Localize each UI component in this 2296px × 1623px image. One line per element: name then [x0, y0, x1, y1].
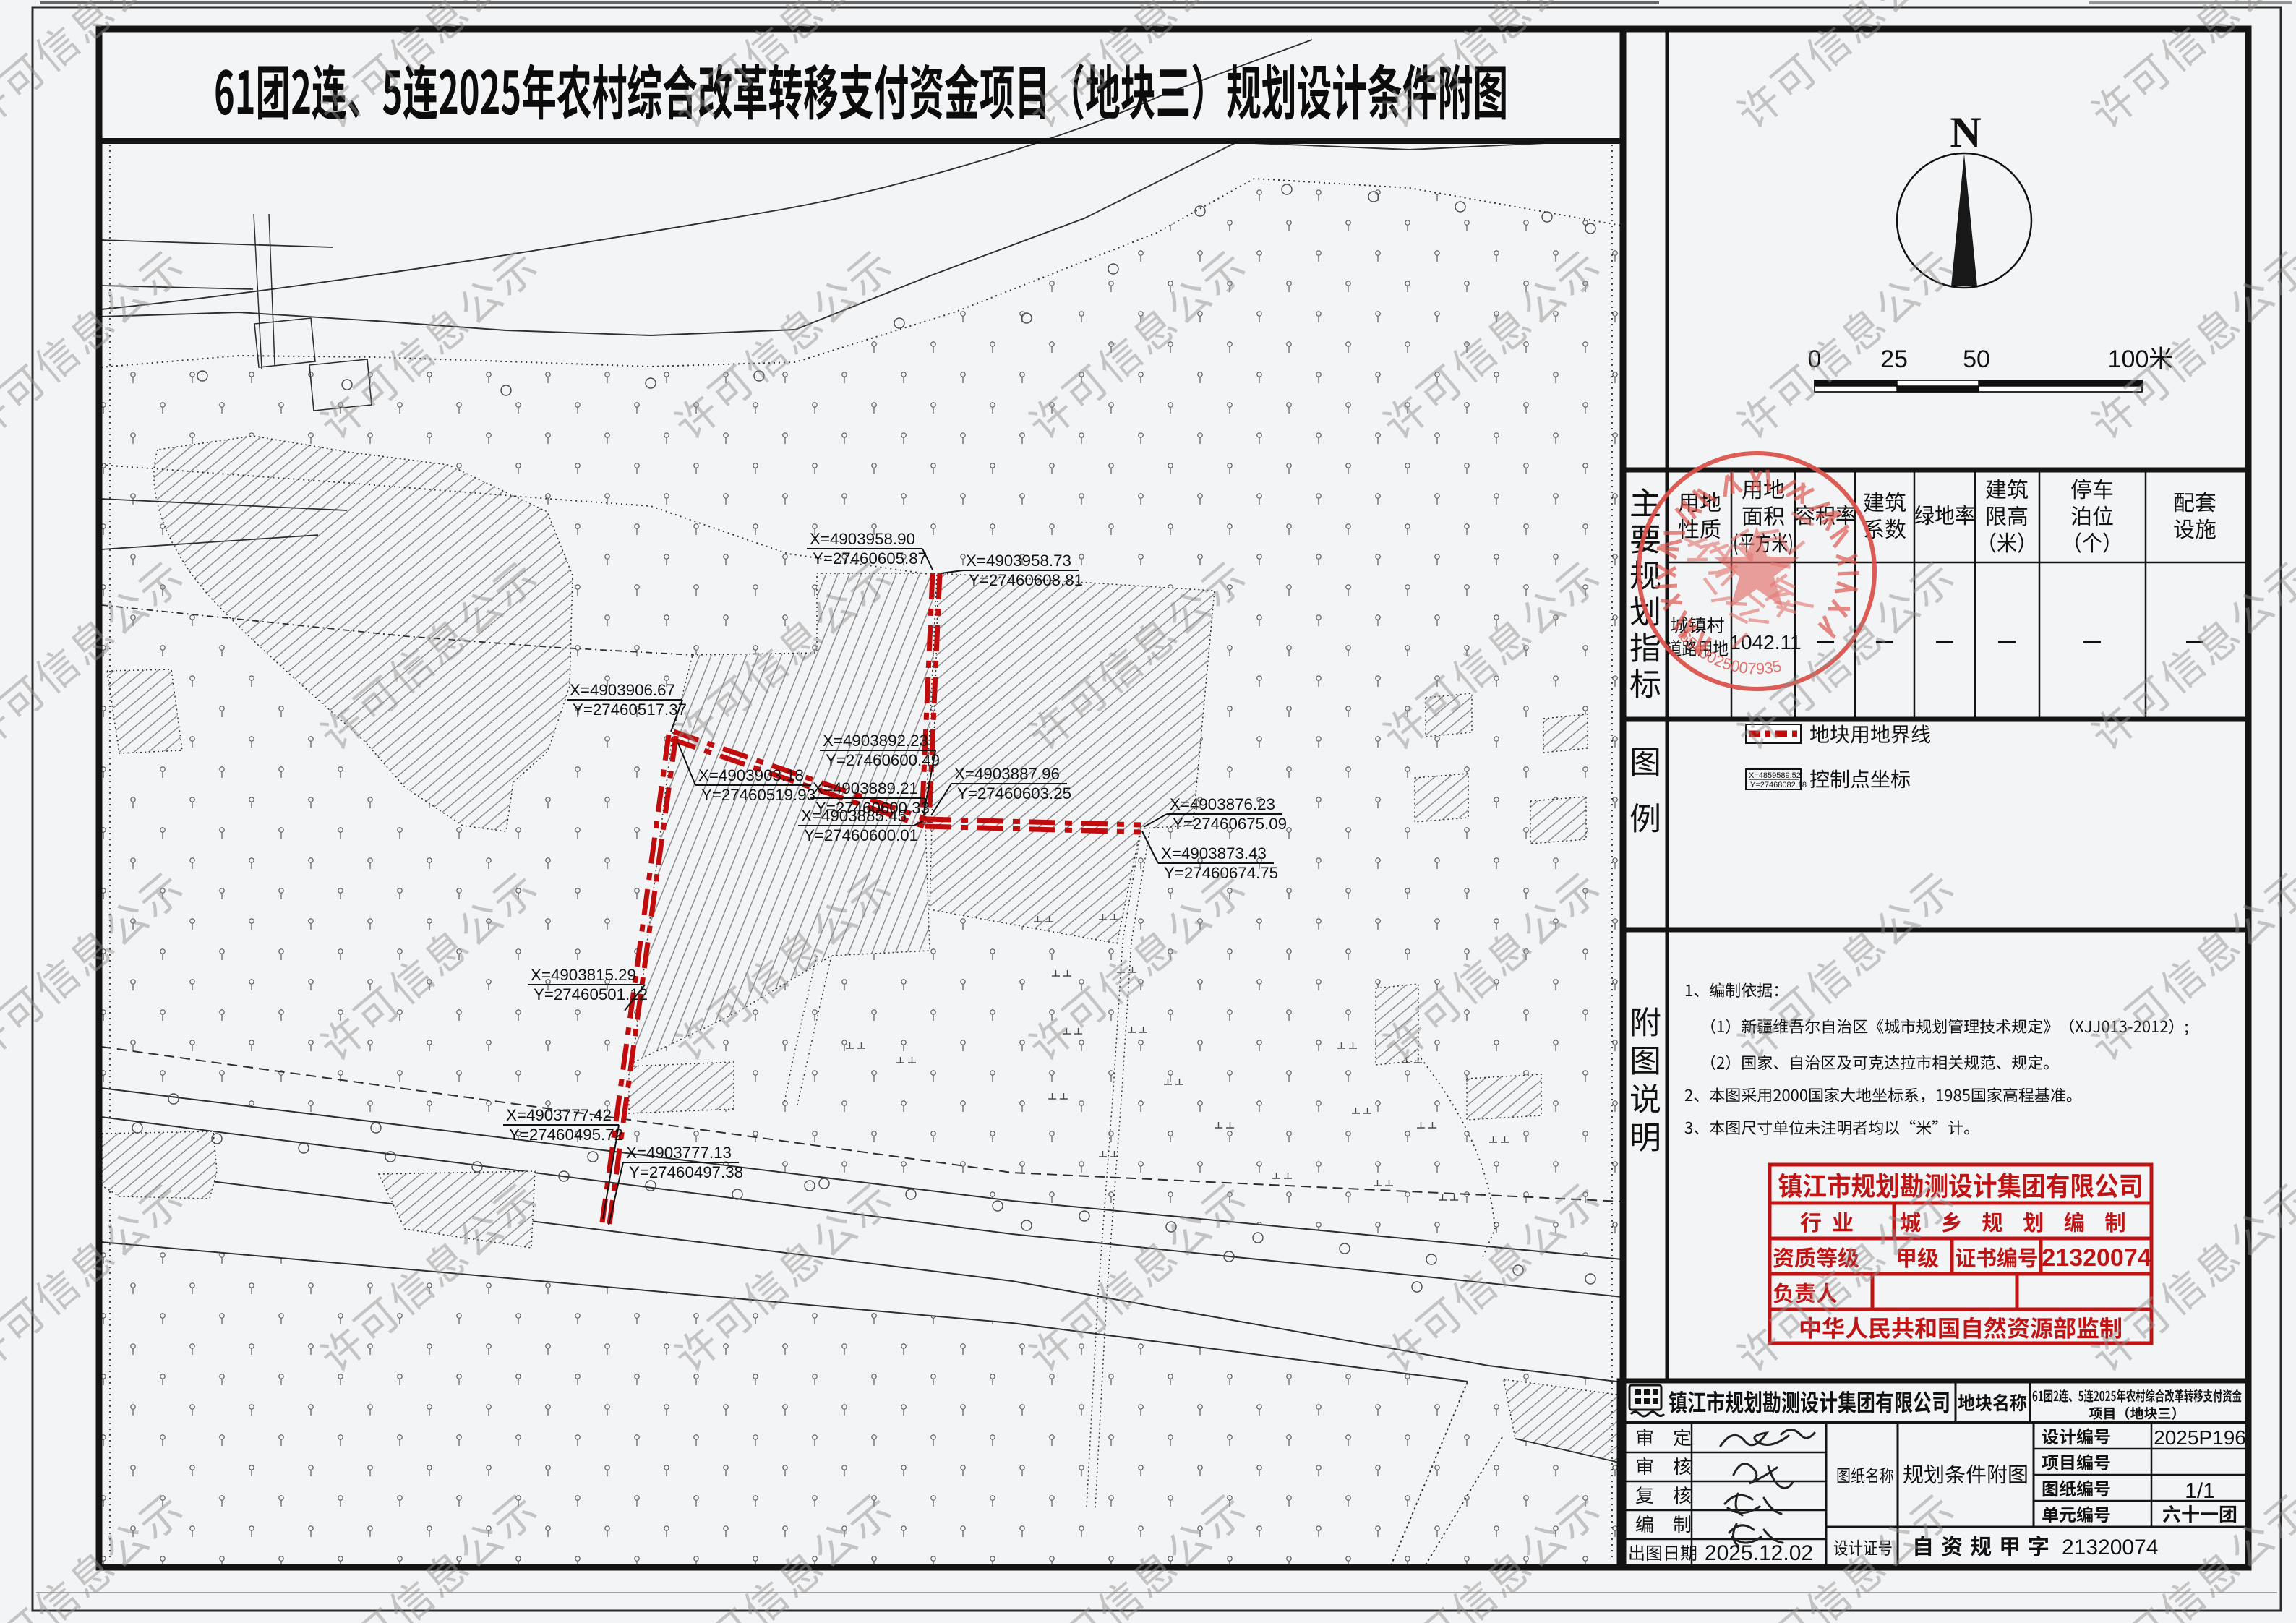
svg-text:Y=27460497.38: Y=27460497.38: [629, 1163, 743, 1181]
svg-text:X=4903958.90: X=4903958.90: [810, 530, 915, 548]
svg-text:Y=27460600.49: Y=27460600.49: [826, 751, 940, 769]
svg-text:X=4903906.67: X=4903906.67: [570, 681, 675, 699]
svg-text:N: N: [1950, 108, 1981, 156]
svg-text:Y=27460519.93: Y=27460519.93: [701, 786, 815, 804]
svg-text:X=4859589.52: X=4859589.52: [1749, 771, 1801, 780]
svg-text:21320074: 21320074: [2062, 1536, 2158, 1559]
svg-text:100: 100: [2108, 346, 2149, 373]
svg-text:25: 25: [1880, 346, 1908, 373]
svg-text:X=4903777.13: X=4903777.13: [626, 1144, 732, 1162]
svg-text:Y=27460517.37: Y=27460517.37: [573, 701, 687, 719]
svg-text:X=4903876.23: X=4903876.23: [1170, 795, 1275, 813]
svg-text:X=4903885.45: X=4903885.45: [801, 807, 907, 825]
svg-text:Y=27460495.72: Y=27460495.72: [509, 1126, 623, 1144]
svg-text:Y=27468082.18: Y=27468082.18: [1750, 781, 1807, 789]
svg-text:X=4903815.29: X=4903815.29: [531, 966, 636, 984]
svg-text:X=4903889.21: X=4903889.21: [813, 779, 918, 797]
svg-text:Y=27460674.75: Y=27460674.75: [1164, 864, 1278, 882]
svg-text:X=4903873.43: X=4903873.43: [1161, 844, 1267, 862]
svg-text:1/1: 1/1: [2185, 1479, 2215, 1503]
svg-text:Y=27460675.09: Y=27460675.09: [1173, 815, 1287, 833]
svg-text:Y=27460600.01: Y=27460600.01: [804, 826, 918, 844]
svg-text:Y=27460603.25: Y=27460603.25: [957, 784, 1071, 802]
svg-text:Y=27460608.81: Y=27460608.81: [969, 571, 1083, 589]
svg-text:Y=27460501.12: Y=27460501.12: [534, 985, 648, 1003]
svg-text:50: 50: [1963, 346, 1990, 373]
svg-text:X=4903903.18: X=4903903.18: [698, 766, 804, 784]
svg-text:X=4903892.23: X=4903892.23: [823, 732, 928, 750]
svg-text:2025P196: 2025P196: [2154, 1426, 2246, 1449]
svg-text:X=4903777.42: X=4903777.42: [506, 1106, 612, 1124]
svg-text:2025.12.02: 2025.12.02: [1705, 1541, 1813, 1565]
svg-text:X=4903958.73: X=4903958.73: [966, 552, 1071, 570]
svg-text:X=4903887.96: X=4903887.96: [954, 765, 1060, 783]
svg-text:21320074: 21320074: [2042, 1244, 2151, 1272]
